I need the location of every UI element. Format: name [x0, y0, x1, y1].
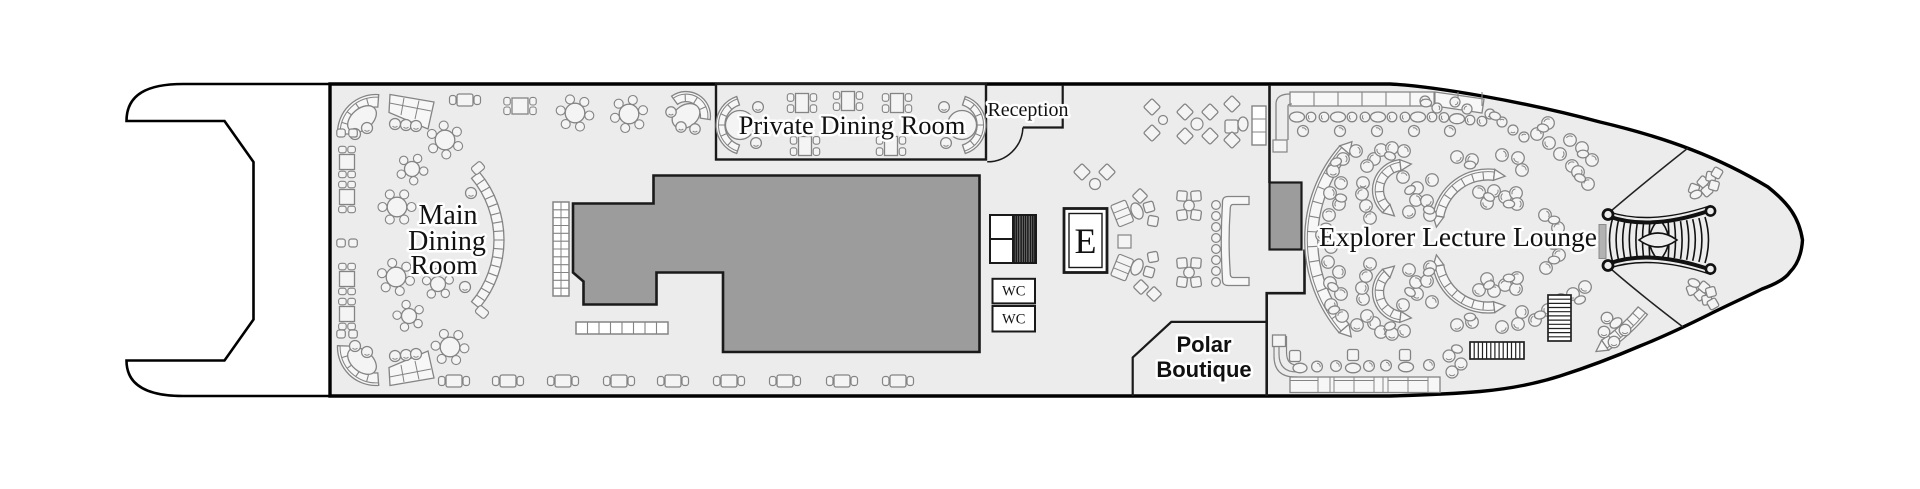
- svg-text:Reception: Reception: [987, 99, 1068, 121]
- svg-text:WC: WC: [1002, 312, 1025, 328]
- svg-text:Boutique: Boutique: [1156, 357, 1251, 382]
- svg-text:WC: WC: [1002, 284, 1025, 300]
- svg-text:Explorer Lecture Lounge: Explorer Lecture Lounge: [1319, 221, 1597, 252]
- svg-text:Polar: Polar: [1176, 332, 1231, 357]
- svg-text:Room: Room: [410, 249, 477, 280]
- svg-text:E: E: [1075, 221, 1097, 261]
- svg-text:Private Dining Room: Private Dining Room: [739, 110, 966, 140]
